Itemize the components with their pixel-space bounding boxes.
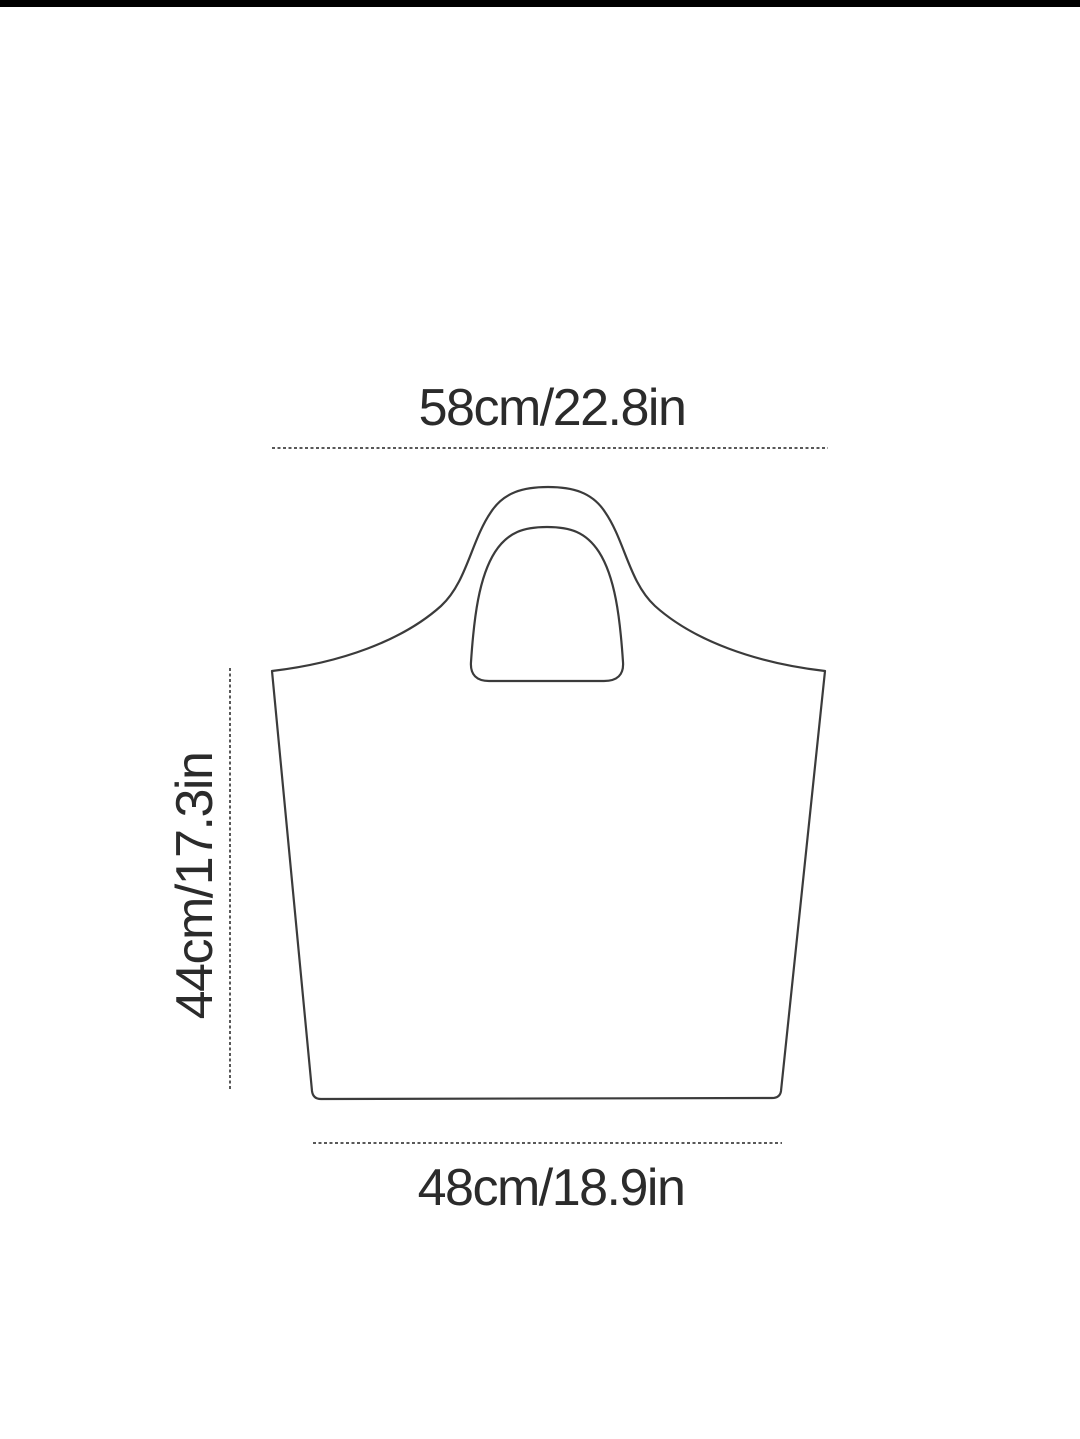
bag-diagram (0, 0, 1080, 1439)
top-width-label: 58cm/22.8in (419, 382, 686, 434)
bag-outline (272, 487, 825, 1099)
height-label: 44cm/17.3in (169, 753, 221, 1020)
dimension-diagram-page: 58cm/22.8in 44cm/17.3in 48cm/18.9in (0, 0, 1080, 1439)
handle-cutout (471, 527, 623, 681)
bottom-width-label: 48cm/18.9in (418, 1162, 685, 1214)
